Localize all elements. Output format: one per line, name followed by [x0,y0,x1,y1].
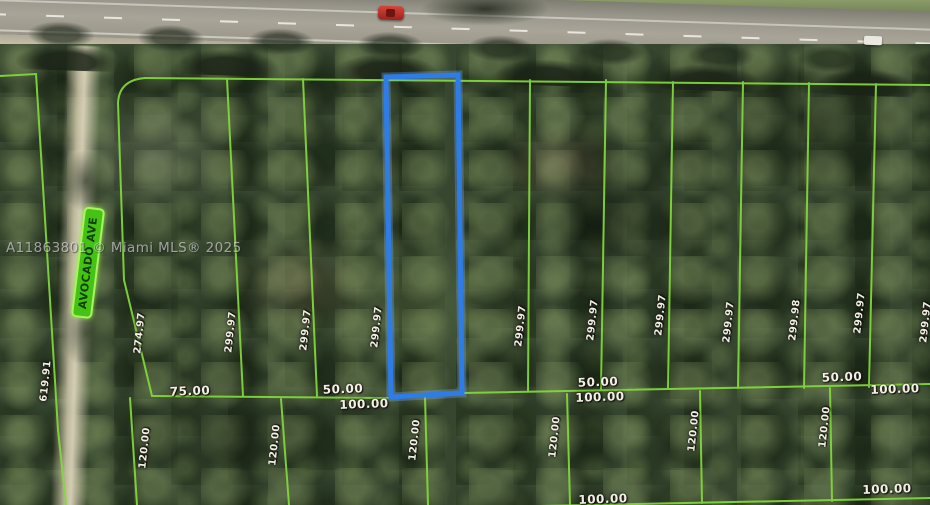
dimension-label: 100.00 [575,389,625,405]
dimension-label: 100.00 [339,396,389,412]
parcel-map: 619.91 274.97 299.97 299.97 299.97 299.9… [0,0,930,505]
tree-canopy-blob [62,150,110,212]
mls-watermark: A11863801 © Miami MLS® 2025 [6,240,242,256]
white-vehicle [864,36,882,46]
dimension-label: 100.00 [862,481,912,497]
dimension-label: 100.00 [870,381,920,397]
dimension-label: 50.00 [323,381,364,396]
forest-canopy [0,44,930,505]
dimension-label: 50.00 [822,369,863,384]
red-vehicle [378,6,404,21]
dimension-label: 50.00 [578,374,619,389]
dimension-label: 100.00 [578,491,628,505]
dimension-label: 75.00 [170,383,211,398]
